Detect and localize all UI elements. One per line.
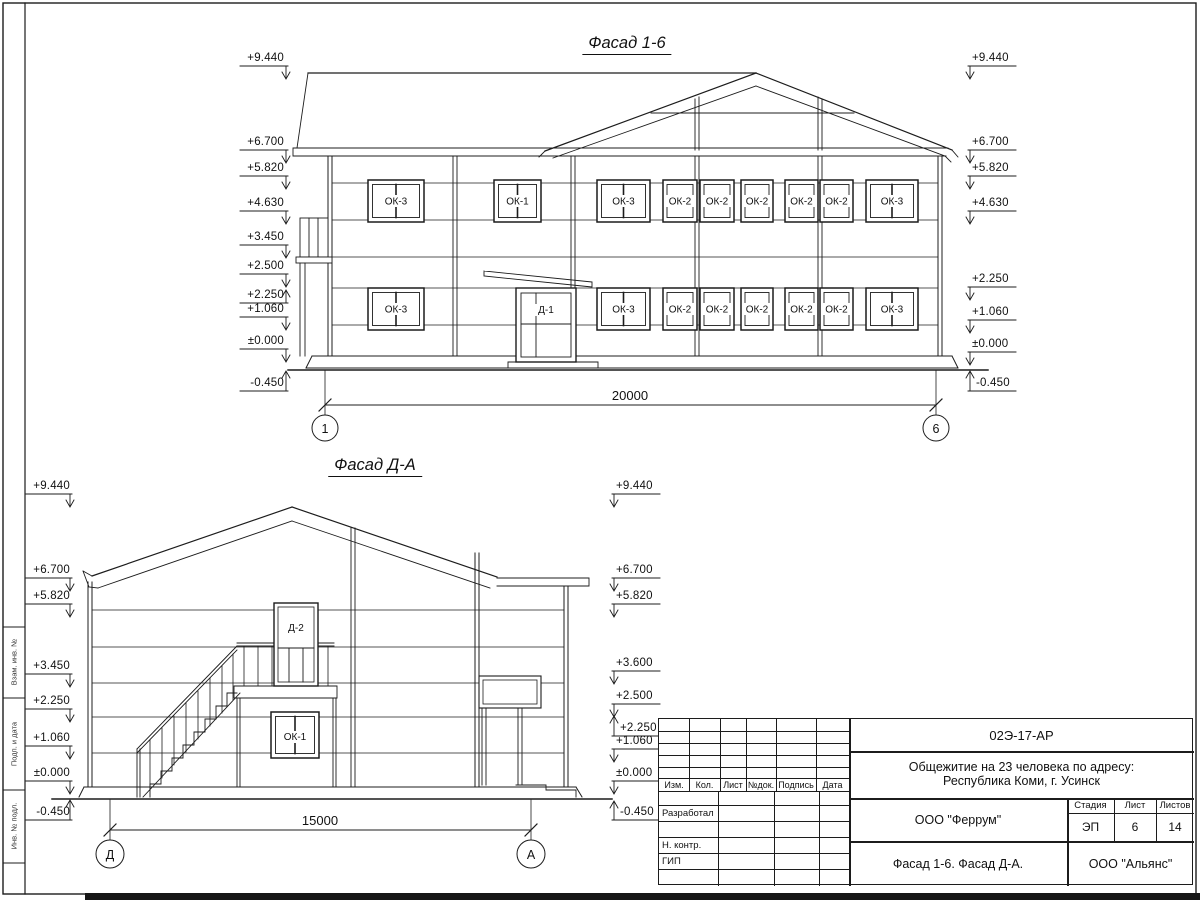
- door-label: Д-2: [288, 623, 304, 634]
- elevation-mark: -0.450: [10, 806, 70, 819]
- stage-value: ЭП: [1067, 813, 1114, 841]
- elevation-mark: -0.450: [976, 377, 1038, 390]
- window-label: ОК-2: [669, 305, 692, 316]
- sheets-value: 14: [1156, 813, 1194, 841]
- axis-marker-d: Д: [106, 848, 114, 862]
- designer-org: ООО "Феррум": [849, 798, 1067, 841]
- elevation-mark: +9.440: [972, 52, 1034, 65]
- elevation-mark: +9.440: [616, 480, 678, 493]
- elevation-mark: +6.700: [972, 136, 1034, 149]
- sheets-header: Листов: [1156, 798, 1194, 813]
- facade-d-a-title: Фасад Д-А: [328, 456, 422, 477]
- sheet-value: 6: [1114, 813, 1156, 841]
- elevation-mark: ±0.000: [224, 335, 284, 348]
- window-label: ОК-3: [881, 197, 904, 208]
- elevation-mark: +2.500: [616, 690, 678, 703]
- drawing-sheet: ОК-3 ОК-1 ОК-3 ОК-2 ОК-2 ОК-2 ОК-2 ОК-2 …: [0, 0, 1200, 900]
- elevation-mark: +2.250: [972, 273, 1034, 286]
- dimension-20000: 20000: [609, 388, 651, 403]
- elevation-mark: +6.700: [616, 564, 678, 577]
- elevation-mark: ±0.000: [10, 767, 70, 780]
- rev-header-ndok: №док.: [746, 778, 776, 791]
- facade-d-a-linework: [26, 494, 660, 868]
- window-label: ОК-3: [385, 305, 408, 316]
- window-label: ОК-2: [746, 197, 769, 208]
- elevation-mark: +5.820: [10, 590, 70, 603]
- rev-header-izm: Изм.: [659, 778, 689, 791]
- dimension-15000: 15000: [299, 813, 341, 828]
- window-label: ОК-1: [284, 732, 307, 743]
- role-gip: ГИП: [662, 856, 681, 867]
- elevation-mark: +9.440: [10, 480, 70, 493]
- project-name-line1: Общежитие на 23 человека по адресу:: [849, 751, 1194, 774]
- window-label: ОК-3: [881, 305, 904, 316]
- rev-header-kol: Кол.: [689, 778, 720, 791]
- elevation-mark: +3.450: [224, 231, 284, 244]
- window-label: ОК-3: [612, 305, 635, 316]
- elevation-mark: +1.060: [10, 732, 70, 745]
- margin-label-inv: Инв. № подл.: [10, 803, 19, 850]
- title-block: Изм. Кол. Лист №док. Подпись Дата Разраб…: [658, 718, 1193, 885]
- window-label: ОК-2: [790, 197, 813, 208]
- rev-header-list: Лист: [720, 778, 746, 791]
- elevation-mark: +6.700: [10, 564, 70, 577]
- window-label: ОК-3: [612, 197, 635, 208]
- elevation-mark: +1.060: [224, 303, 284, 316]
- window-label: ОК-2: [706, 197, 729, 208]
- elevation-mark: +1.060: [972, 306, 1034, 319]
- drawing-title: Фасад 1-6. Фасад Д-А.: [849, 841, 1067, 886]
- window-label: ОК-2: [706, 305, 729, 316]
- axis-marker-6: 6: [933, 422, 940, 436]
- elevation-mark: +4.630: [224, 197, 284, 210]
- general-contractor: ООО "Альянс": [1067, 841, 1194, 886]
- margin-label-vzam: Взам. инв. №: [10, 639, 19, 685]
- window-label: ОК-2: [825, 197, 848, 208]
- elevation-mark: +6.700: [224, 136, 284, 149]
- elevation-mark: +5.820: [616, 590, 678, 603]
- window-label: ОК-2: [825, 305, 848, 316]
- rev-header-data: Дата: [816, 778, 849, 791]
- facade-1-6-linework: [240, 66, 1016, 441]
- elevation-mark: +5.820: [972, 162, 1034, 175]
- window-label: ОК-2: [790, 305, 813, 316]
- role-developer: Разработал: [662, 808, 714, 819]
- doc-number: 02Э-17-АР: [849, 719, 1194, 751]
- elevation-mark: +2.500: [224, 260, 284, 273]
- door-label: Д-1: [538, 305, 554, 316]
- stage-header: Стадия: [1067, 798, 1114, 813]
- elevation-mark: +4.630: [972, 197, 1034, 210]
- sheet-header: Лист: [1114, 798, 1156, 813]
- elevation-mark: +2.250: [224, 289, 284, 302]
- elevation-mark: +2.250: [10, 695, 70, 708]
- scan-edge-strip: [85, 893, 1200, 900]
- elevation-mark: -0.450: [224, 377, 284, 390]
- rev-header-podpis: Подпись: [776, 778, 816, 791]
- elevation-mark: +3.450: [10, 660, 70, 673]
- window-label: ОК-2: [746, 305, 769, 316]
- margin-label-podp: Подп. и дата: [10, 722, 19, 766]
- axis-marker-a: А: [527, 848, 535, 862]
- elevation-mark: +5.820: [224, 162, 284, 175]
- elevation-mark: +3.600: [616, 657, 678, 670]
- window-label: ОК-3: [385, 197, 408, 208]
- elevation-mark: ±0.000: [972, 338, 1034, 351]
- elevation-mark: +9.440: [224, 52, 284, 65]
- role-n-control: Н. контр.: [662, 840, 701, 851]
- facade-1-6-title: Фасад 1-6: [582, 34, 671, 55]
- window-label: ОК-1: [506, 197, 529, 208]
- project-name-line2: Республика Коми, г. Усинск: [849, 774, 1194, 792]
- window-label: ОК-2: [669, 197, 692, 208]
- axis-marker-1: 1: [322, 422, 329, 436]
